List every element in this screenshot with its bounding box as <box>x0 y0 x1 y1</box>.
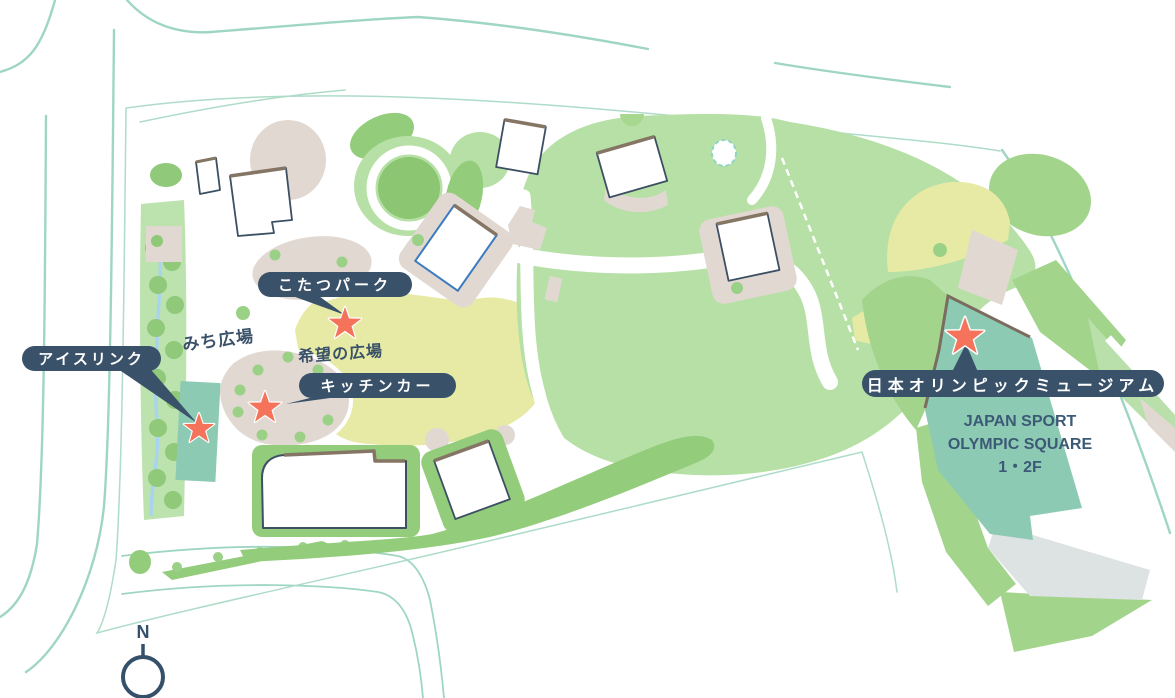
building-small-1 <box>196 158 220 194</box>
dashed-tree-outline <box>712 140 736 166</box>
building-large-south <box>262 451 406 528</box>
park-map: こたつパーク アイスリンク キッチンカー 日本オリンピックミュージアム みち広場… <box>0 0 1175 698</box>
pin-label-kotatsu-park[interactable]: こたつパーク <box>258 272 412 297</box>
compass-north-label: N <box>130 622 156 643</box>
pin-label-kitchen-car[interactable]: キッチンカー <box>299 373 456 398</box>
pin-label-ice-rink[interactable]: アイスリンク <box>22 346 161 371</box>
museum-caption-line3: 1・2F <box>929 456 1111 479</box>
museum-caption: JAPAN SPORT OLYMPIC SQUARE 1・2F <box>929 410 1111 479</box>
museum-caption-line1: JAPAN SPORT <box>929 410 1111 433</box>
building-small-2 <box>230 168 292 236</box>
building-north-1 <box>496 120 546 175</box>
building-east-pavilion <box>697 204 799 306</box>
museum-caption-line2: OLYMPIC SQUARE <box>929 433 1111 456</box>
compass <box>123 644 163 697</box>
pin-label-olympic-museum[interactable]: 日本オリンピックミュージアム <box>862 370 1164 397</box>
strip-beige-pad <box>146 226 182 262</box>
map-canvas <box>0 0 1175 698</box>
